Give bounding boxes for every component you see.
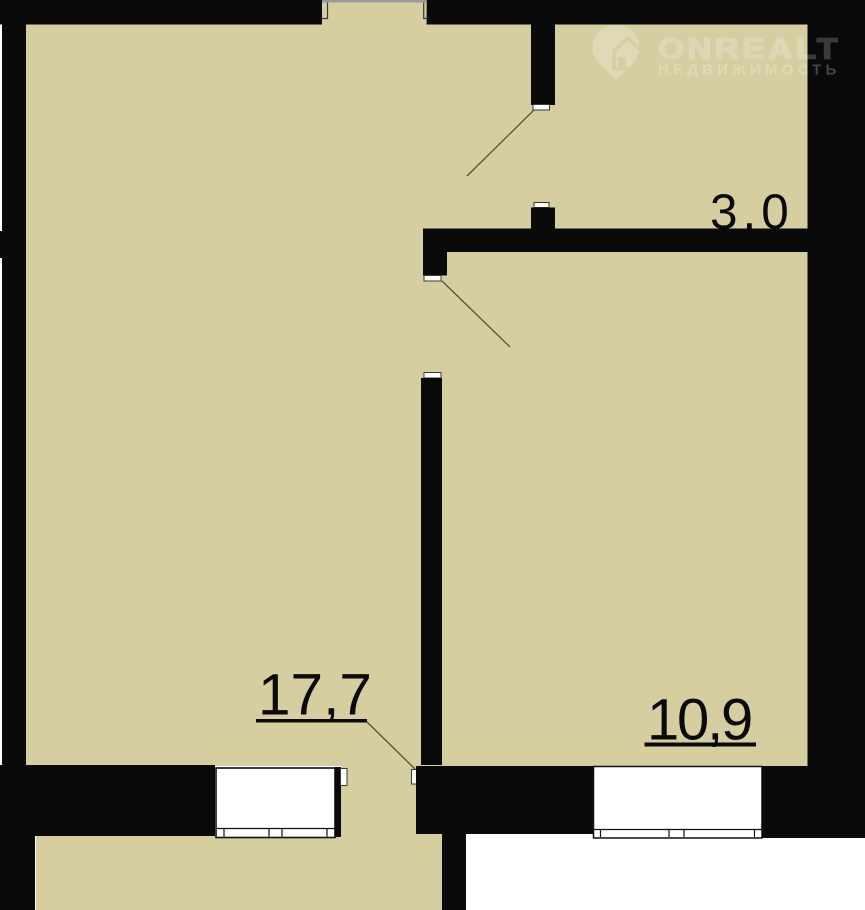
svg-text:НЕДВИЖИМОСТЬ: НЕДВИЖИМОСТЬ [658, 62, 840, 79]
svg-text:17,7: 17,7 [258, 663, 372, 728]
svg-text:ONREALT: ONREALT [658, 33, 841, 65]
svg-text:3.0: 3.0 [710, 185, 794, 240]
